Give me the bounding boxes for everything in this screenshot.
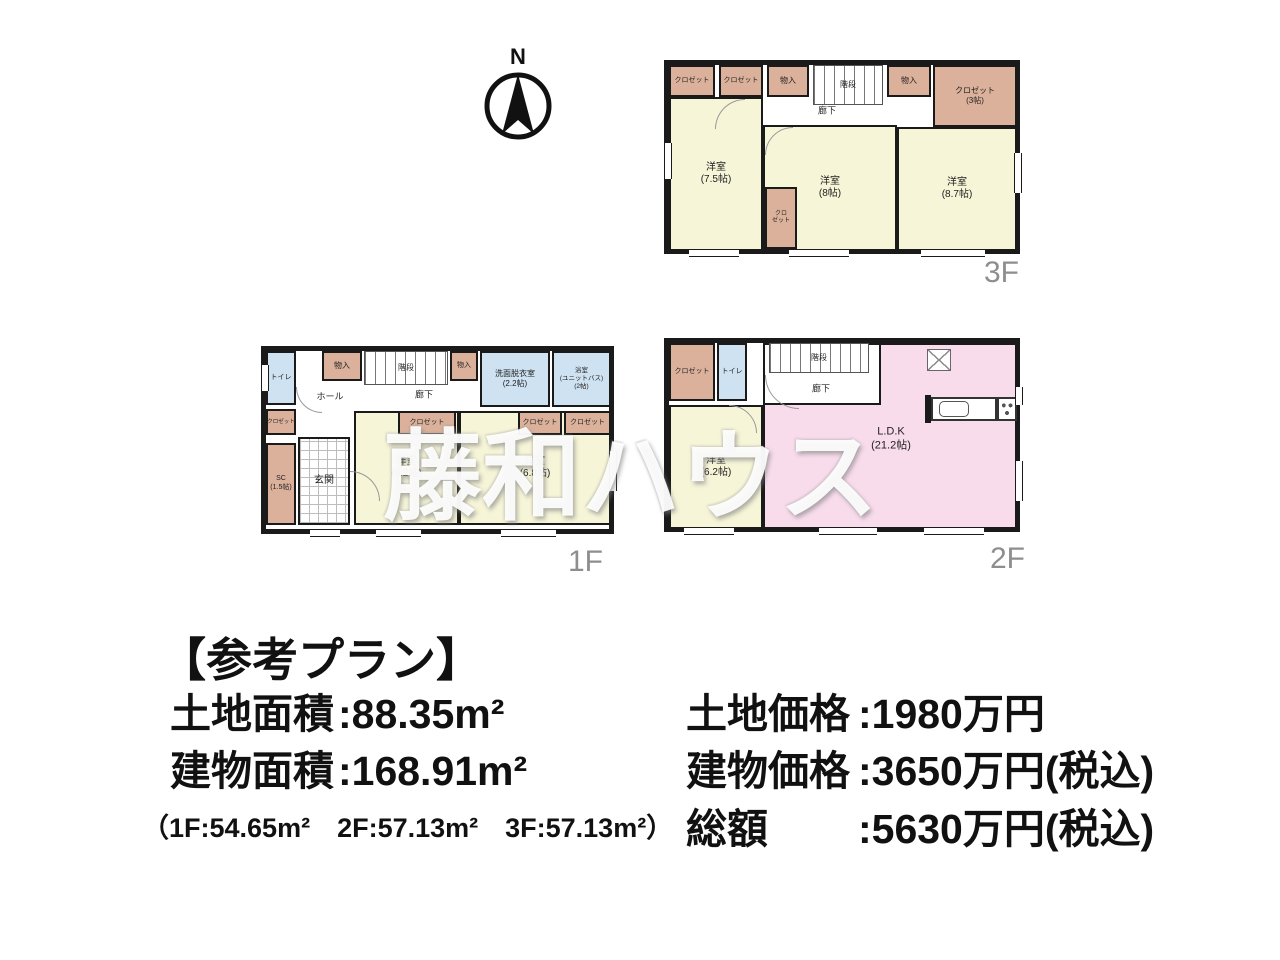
building-area-row: 建物面積 :168.91m² — [170, 749, 527, 793]
closet-label: クロゼット — [410, 419, 445, 428]
window-opening — [376, 529, 421, 537]
staircase: 階段 — [813, 65, 883, 105]
closet: クロゼット — [719, 65, 763, 97]
staircase: 階段 — [769, 343, 869, 373]
staircase-label: 階段 — [398, 363, 414, 373]
stove — [997, 397, 1017, 421]
washroom-label: 洗面脱衣室(2.2帖) — [495, 369, 535, 389]
window-opening — [261, 365, 269, 391]
shoe-closet: SC(1.5帖) — [266, 443, 296, 525]
staircase-label: 階段 — [840, 80, 856, 90]
western-room-label: 洋室(8帖) — [819, 176, 841, 201]
window-opening — [689, 249, 739, 257]
closet: クロゼット — [518, 411, 562, 435]
closet-label: クロゼット — [267, 419, 295, 426]
closet: クロゼット — [564, 411, 611, 435]
reference-plan-title: 【参考プラン】 — [160, 624, 482, 690]
toilet: トイレ — [266, 351, 296, 405]
storage-label: 物入 — [901, 76, 917, 86]
north-compass: N — [476, 44, 560, 144]
floor-plan-1f: トイレ物入階段物入洗面脱衣室(2.2帖)浴室(ユニットバス)(2帖)クロゼットS… — [261, 346, 614, 534]
storage-label: 物入 — [780, 76, 796, 86]
window-opening — [609, 451, 617, 491]
compass-north-label: N — [510, 44, 526, 69]
window-opening — [1014, 153, 1022, 193]
area-info: 土地面積 :88.35m² 建物面積 :168.91m² — [170, 692, 527, 807]
entrance: 玄関 — [298, 437, 350, 525]
toilet: トイレ — [717, 343, 747, 401]
bathroom: 浴室(ユニットバス)(2帖) — [552, 351, 611, 407]
closet-label: クロゼット — [570, 419, 605, 428]
entrance-label: 玄関 — [314, 475, 334, 488]
building-area-label: 建物面積 — [170, 749, 338, 793]
land-price-value: :1980万円 — [858, 692, 1045, 736]
closet-label: クロゼット — [675, 77, 710, 86]
staircase: 階段 — [364, 351, 448, 385]
floor-label-3f: 3F — [984, 256, 1019, 290]
floor-plan-3f: クロゼットクロゼット物入階段物入クロゼット(3帖)洋室(7.5帖)洋室(8帖)洋… — [664, 60, 1020, 254]
floor-plan-flyer: N クロゼットクロゼット物入階段物入クロゼット(3帖)洋室(7.5帖)洋室(8帖… — [0, 0, 1280, 960]
total-price-label: 総額 — [686, 807, 858, 851]
closet: クロゼット(3帖) — [933, 65, 1017, 127]
toilet-label: トイレ — [722, 368, 743, 377]
pantry-box — [927, 349, 951, 371]
floor-label-2f: 2F — [990, 542, 1025, 576]
hallway-label: 廊下 — [818, 105, 836, 116]
closet: クロゼット — [669, 343, 715, 401]
closet: クロゼット — [398, 411, 456, 435]
toilet-label: トイレ — [271, 374, 292, 383]
ldk-label: L.D.K(21.2帖) — [871, 425, 911, 453]
building-price-row: 建物価格 :3650万円(税込) — [686, 749, 1154, 793]
floor-label-1f: 1F — [568, 545, 603, 579]
staircase-label: 階段 — [811, 353, 827, 363]
bathroom-label: 浴室(ユニットバス)(2帖) — [560, 367, 603, 391]
western-room: 洋室(8.7帖) — [897, 127, 1017, 251]
storage: 物入 — [450, 351, 478, 381]
washroom: 洗面脱衣室(2.2帖) — [480, 351, 550, 407]
window-opening — [924, 527, 984, 535]
storage-label: 物入 — [457, 362, 471, 371]
storage-label: 物入 — [334, 361, 350, 371]
storage: 物入 — [767, 65, 809, 97]
western-room-label: 洋室(6.2帖) — [701, 455, 732, 480]
north-arrow-icon — [502, 74, 534, 134]
closet: クロゼット — [765, 187, 797, 249]
hallway-label: 廊下 — [812, 383, 830, 394]
kitchen-sink — [939, 401, 969, 417]
closet-label: クロゼット — [724, 77, 759, 86]
closet-label: クロゼット — [523, 419, 558, 428]
land-area-row: 土地面積 :88.35m² — [170, 692, 527, 736]
western-room-label: 洋室(6.8帖) — [520, 456, 551, 481]
storage: 物入 — [322, 351, 362, 381]
closet-label: クロゼット — [772, 211, 790, 226]
land-area-value: :88.35m² — [338, 692, 504, 736]
floor-plan-2f: 階段クロゼットトイレ洋室(6.2帖)廊下L.D.K(21.2帖) — [664, 338, 1020, 532]
window-opening — [310, 529, 340, 537]
shoe-closet-label: SC(1.5帖) — [270, 475, 291, 493]
window-opening — [664, 143, 672, 179]
window-opening — [501, 529, 556, 537]
price-info: 土地価格 :1980万円 建物価格 :3650万円(税込) 総額 :5630万円… — [686, 692, 1154, 864]
land-price-row: 土地価格 :1980万円 — [686, 692, 1154, 736]
land-price-label: 土地価格 — [686, 692, 858, 736]
hallway-label: 廊下 — [415, 389, 433, 400]
total-price-value: :5630万円(税込) — [858, 807, 1154, 851]
window-opening — [684, 527, 734, 535]
total-price-row: 総額 :5630万円(税込) — [686, 807, 1154, 851]
closet: クロゼット — [669, 65, 715, 97]
storage: 物入 — [887, 65, 931, 97]
closet-label: クロゼット — [675, 368, 710, 377]
western-room-label: 洋室(6.2帖) — [391, 456, 422, 481]
door-swing-arc — [296, 387, 322, 413]
window-opening — [789, 249, 849, 257]
window-opening — [1015, 387, 1023, 405]
floor-area-breakdown: （1F:54.65m² 2F:57.13m² 3F:57.13m²） — [142, 806, 673, 845]
western-room-label: 洋室(8.7帖) — [942, 177, 973, 202]
building-price-label: 建物価格 — [686, 749, 858, 793]
window-opening — [819, 527, 877, 535]
closet: クロゼット — [266, 409, 296, 435]
western-room-label: 洋室(7.5帖) — [701, 162, 732, 187]
closet-label: クロゼット(3帖) — [955, 86, 995, 106]
land-area-label: 土地面積 — [170, 692, 338, 736]
building-area-value: :168.91m² — [338, 749, 527, 793]
building-price-value: :3650万円(税込) — [858, 749, 1154, 793]
compass-icon: N — [476, 44, 560, 144]
window-opening — [921, 249, 985, 257]
window-opening — [1015, 461, 1023, 501]
